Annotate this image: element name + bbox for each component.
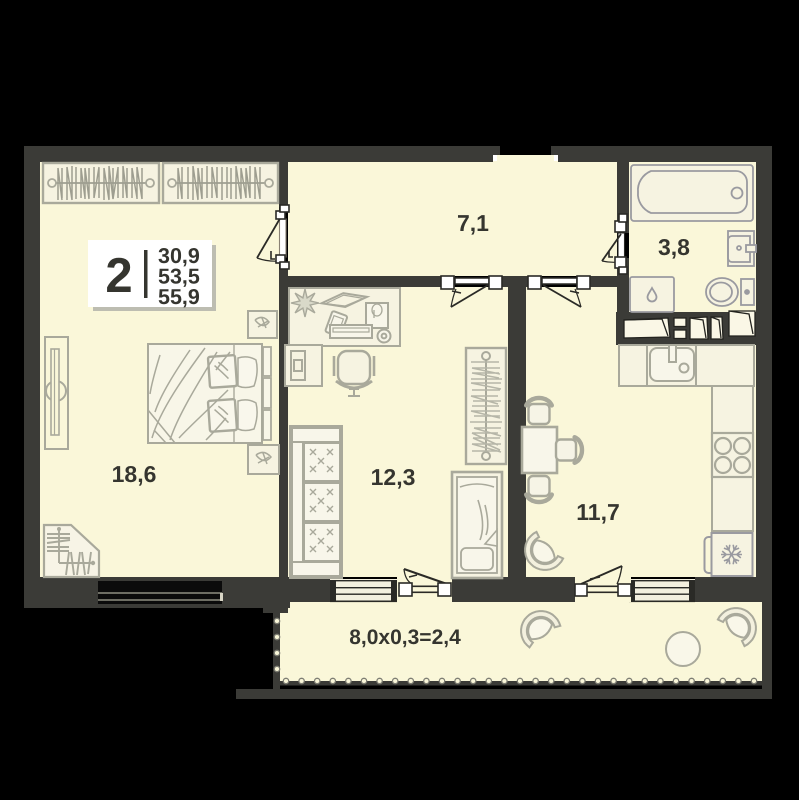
svg-text:55,9: 55,9 <box>158 285 200 309</box>
svg-text:7,1: 7,1 <box>457 210 489 236</box>
svg-text:11,7: 11,7 <box>576 499 620 525</box>
svg-text:3,8: 3,8 <box>658 234 690 260</box>
svg-text:18,6: 18,6 <box>112 461 157 487</box>
svg-text:8,0x0,3=2,4: 8,0x0,3=2,4 <box>349 626 461 649</box>
svg-text:12,3: 12,3 <box>371 464 416 490</box>
svg-text:2: 2 <box>105 249 132 303</box>
